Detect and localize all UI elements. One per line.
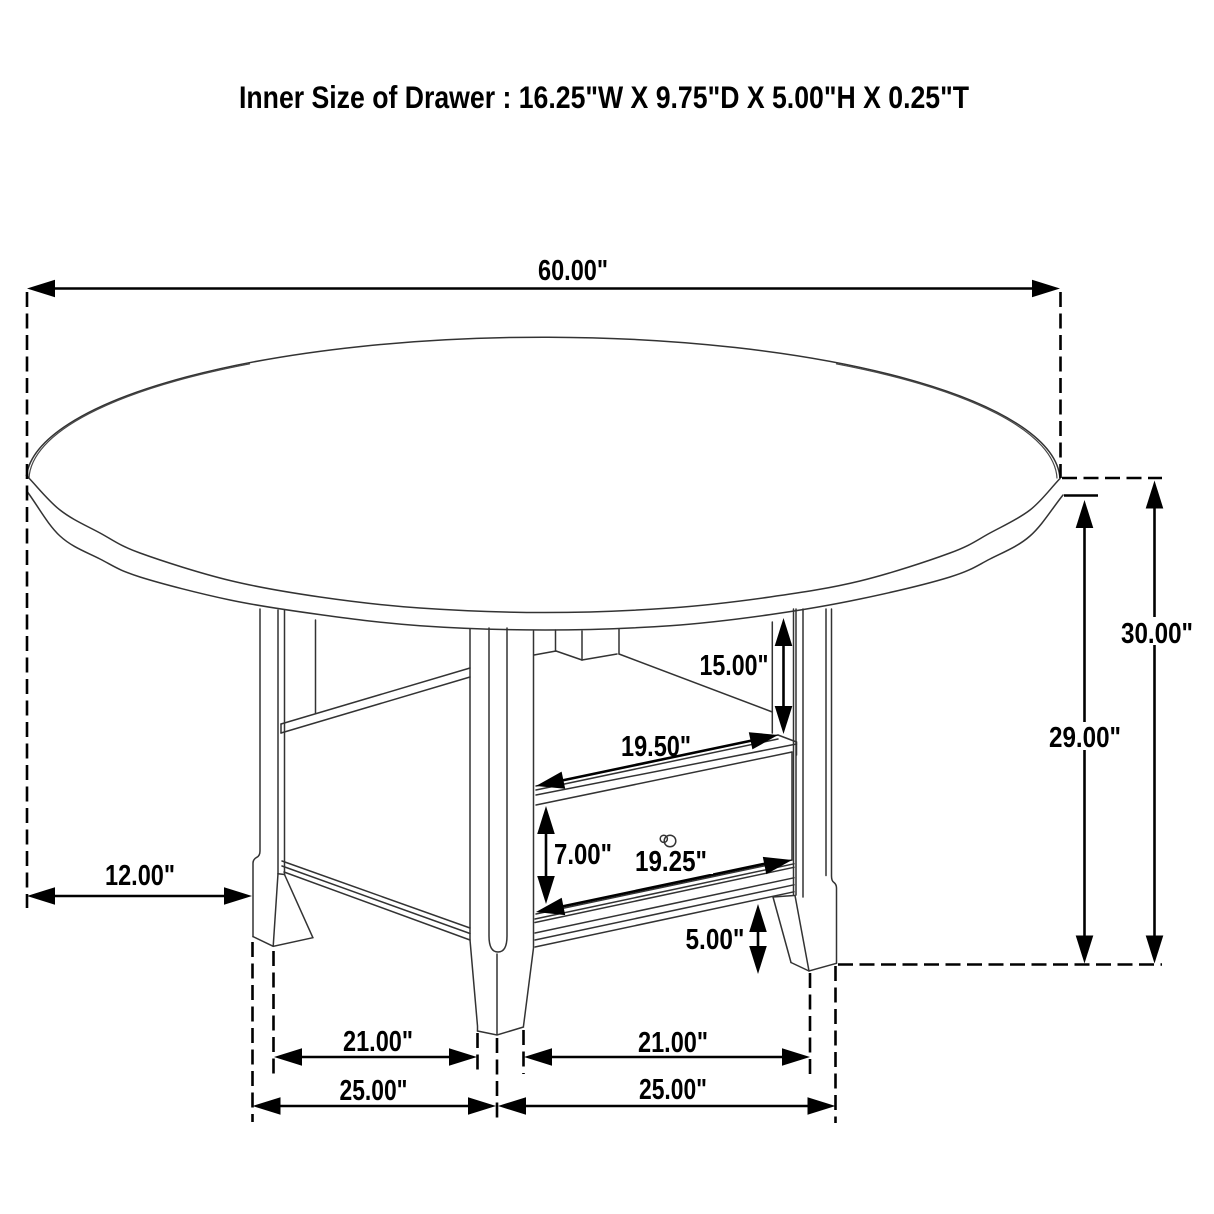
svg-text:21.00": 21.00" xyxy=(638,1027,708,1059)
svg-text:19.50": 19.50" xyxy=(621,731,691,763)
svg-text:19.25": 19.25" xyxy=(635,846,707,878)
svg-text:5.00": 5.00" xyxy=(686,924,745,956)
svg-text:29.00": 29.00" xyxy=(1049,722,1121,754)
svg-text:15.00": 15.00" xyxy=(700,650,769,682)
svg-text:12.00": 12.00" xyxy=(105,860,175,892)
svg-text:30.00": 30.00" xyxy=(1121,618,1193,650)
svg-text:7.00": 7.00" xyxy=(554,839,612,871)
svg-text:21.00": 21.00" xyxy=(343,1026,413,1058)
svg-text:25.00": 25.00" xyxy=(639,1074,707,1106)
svg-text:60.00": 60.00" xyxy=(538,255,608,287)
svg-text:Inner Size of Drawer : 16.25"W: Inner Size of Drawer : 16.25"W X 9.75"D … xyxy=(239,79,969,115)
svg-text:25.00": 25.00" xyxy=(340,1075,408,1107)
